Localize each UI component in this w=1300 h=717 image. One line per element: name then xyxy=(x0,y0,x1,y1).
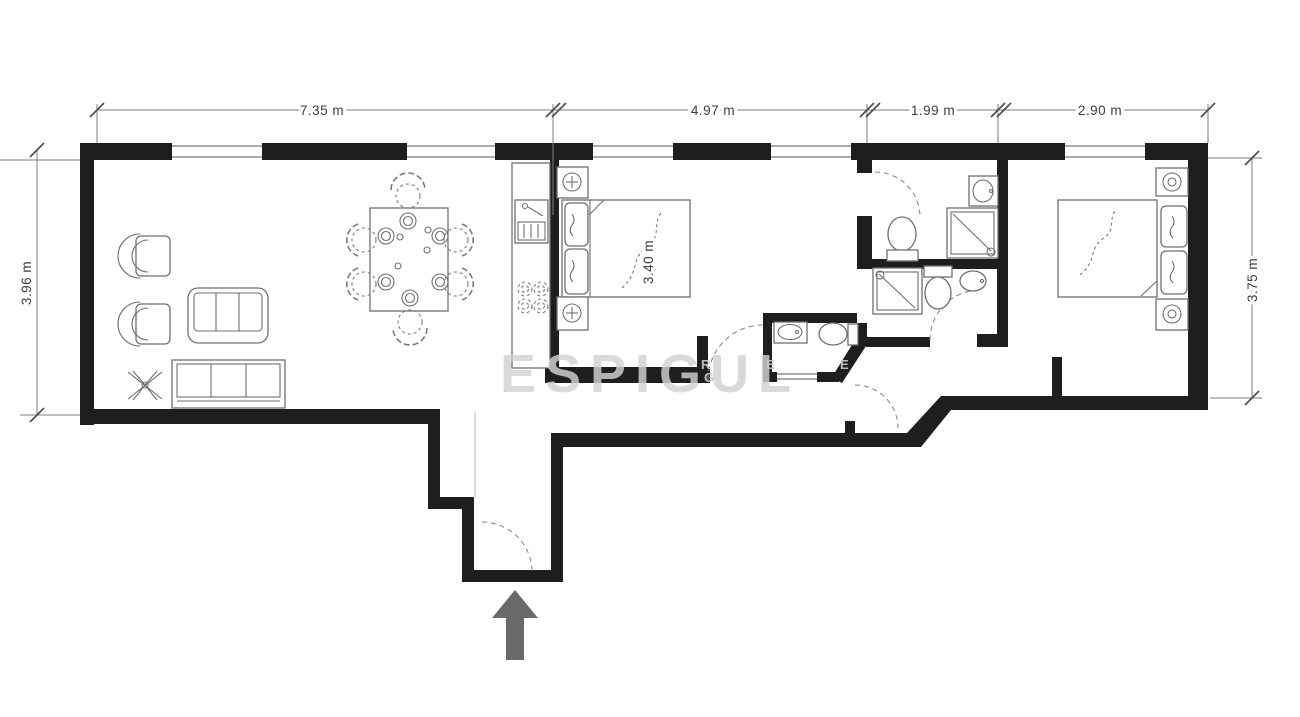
floor-plan-drawing: 3.40 m xyxy=(0,0,1300,717)
pillow xyxy=(565,203,588,246)
armchair xyxy=(118,302,170,346)
bed-dimension: 3.40 m xyxy=(641,240,656,284)
shower xyxy=(873,268,922,314)
entrance-arrow xyxy=(492,590,538,660)
watermark-fragment: E xyxy=(840,357,849,372)
bedroom-2 xyxy=(1058,168,1188,330)
window xyxy=(593,146,673,157)
window xyxy=(771,146,851,157)
dim-top-2: 4.97 m xyxy=(691,103,735,118)
dining-table xyxy=(370,208,448,311)
window xyxy=(172,146,262,157)
living-room xyxy=(118,163,550,408)
kitchen-counter xyxy=(512,163,550,368)
nightstand xyxy=(1156,168,1188,196)
entry-door-arc xyxy=(482,522,532,572)
watermark-fragment: G xyxy=(704,370,714,385)
pillow xyxy=(1161,206,1187,247)
watermark-fragment: E xyxy=(766,357,775,372)
nightstand xyxy=(1156,299,1188,330)
armchair xyxy=(118,234,170,278)
watermark-text: ESPIGUL xyxy=(500,344,800,404)
wc-room xyxy=(774,322,858,345)
sideboard xyxy=(172,360,285,408)
toilet xyxy=(924,266,952,277)
bathroom-top-door-arc xyxy=(875,172,920,217)
window xyxy=(407,146,495,157)
bedroom-1: 3.40 m xyxy=(557,167,690,330)
sofa xyxy=(188,288,268,343)
nightstand xyxy=(557,297,588,330)
pillow xyxy=(1161,251,1187,294)
bathroom-bottom xyxy=(873,266,986,314)
window xyxy=(1065,146,1145,157)
plant xyxy=(128,371,162,400)
dim-left: 3.96 m xyxy=(19,261,34,305)
watermark: ESPIGUL R E G E xyxy=(500,344,849,404)
sink xyxy=(960,271,986,291)
floor-plan-page: 3.40 m xyxy=(0,0,1300,717)
dim-top-1: 7.35 m xyxy=(300,103,344,118)
nightstand xyxy=(557,167,588,198)
wc-toilet xyxy=(819,323,847,345)
bed-2 xyxy=(1058,200,1157,297)
shower xyxy=(947,208,998,258)
bathroom-top xyxy=(887,176,998,261)
dim-top-4: 2.90 m xyxy=(1078,103,1122,118)
pillow xyxy=(565,249,588,294)
dim-top-3: 1.99 m xyxy=(911,103,955,118)
dim-right: 3.75 m xyxy=(1245,258,1260,302)
hallway-door-arc xyxy=(855,385,898,428)
toilet xyxy=(888,217,916,251)
